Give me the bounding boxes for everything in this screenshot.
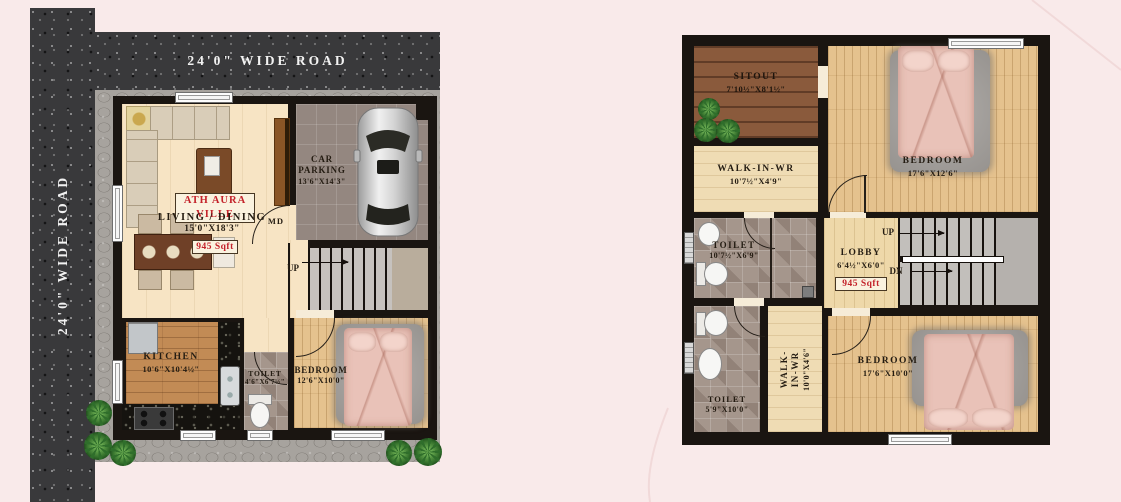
staircase-ground	[308, 248, 392, 310]
sitout-label: SITOUT 7'10½"X8'1½"	[694, 72, 818, 95]
bedroom-bottom-label: BEDROOM 17'6"X10'0"	[828, 356, 948, 379]
stairs-up-label-first: UP	[872, 227, 894, 238]
down-arrow-icon	[912, 271, 952, 272]
passage	[244, 318, 288, 354]
sitout-door-opening	[818, 66, 828, 98]
window	[112, 185, 123, 242]
plant-icon	[84, 432, 112, 460]
plant-icon	[110, 440, 136, 466]
main-door-label: MD	[264, 216, 288, 227]
car-parking-label: CAR PARKING 13'6"X14'3"	[286, 154, 358, 187]
toilet-top-label: TOILET 10'7½"X6'9"	[694, 240, 774, 261]
shower-drain-icon	[802, 286, 814, 298]
living-dining-label: LIVING / DINING 15'0"X18'3"	[150, 211, 274, 236]
toilet-bowl-icon	[704, 310, 728, 336]
road-top: 24'0" WIDE ROAD	[95, 32, 440, 90]
fridge-icon	[128, 322, 158, 354]
toilet-bottom-label: TOILET 5'9"X10'0"	[694, 394, 760, 415]
bedroom-bottom-door-opening	[832, 308, 870, 316]
door-leaf	[864, 175, 866, 213]
window	[684, 342, 694, 374]
walk-in-wr-bottom-label-wrap: WALK-IN-WR 10'0"X4'6"	[768, 306, 822, 432]
window	[175, 92, 233, 103]
sofa-icon	[150, 106, 230, 140]
ground-area-box: 945 Sqft	[192, 240, 238, 254]
road-left: 24'0" WIDE ROAD	[30, 8, 95, 502]
window	[684, 232, 694, 264]
dining-chair-icon	[170, 270, 194, 290]
bedroom-door-opening	[296, 310, 334, 318]
pillow-icon	[348, 332, 376, 352]
staircase-first-up-flight	[898, 218, 996, 256]
stair-handrail	[902, 256, 1004, 263]
car-icon	[352, 106, 424, 238]
toilet-ground-label: TOILET 4'6"X6'7½"	[239, 369, 291, 387]
window	[888, 434, 952, 445]
walk-in-wr-top-label: WALK-IN-WR 10'7½"X4'9"	[694, 164, 818, 187]
toilet-bowl-icon	[250, 402, 270, 428]
kitchen-label: KITCHEN 10'6"X10'4½"	[126, 352, 216, 375]
stairs-dn-label-first: DN	[884, 266, 908, 277]
up-arrow-icon	[302, 262, 348, 263]
pillow-icon	[902, 50, 934, 72]
window	[112, 360, 123, 404]
plant-icon	[716, 119, 740, 143]
pillow-icon	[380, 332, 408, 352]
staircase-landing-ground	[392, 248, 428, 310]
up-arrow-icon	[898, 233, 944, 234]
bedroom-ground-label: BEDROOM 12'6"X10'0"	[292, 365, 350, 386]
dining-chair-icon	[138, 270, 162, 290]
plant-icon	[694, 118, 718, 142]
plant-icon	[414, 438, 442, 466]
window	[180, 430, 216, 441]
laptop-icon	[204, 156, 220, 176]
window	[247, 430, 273, 441]
road-top-label: 24'0" WIDE ROAD	[187, 53, 347, 69]
floor-plan-canvas: 24'0" WIDE ROAD 24'0" WIDE ROAD	[0, 0, 1121, 502]
plant-icon	[386, 440, 412, 466]
pillow-icon	[928, 408, 968, 428]
lamp-table-icon	[126, 106, 152, 132]
stove-icon	[134, 407, 174, 430]
hall-corridor	[290, 240, 308, 318]
toilet-bowl-icon	[704, 262, 728, 286]
plant-icon	[86, 400, 112, 426]
sink-icon	[698, 348, 722, 380]
pillow-icon	[972, 408, 1012, 428]
window	[948, 38, 1024, 49]
first-area-box: 945 Sqft	[835, 277, 887, 291]
road-left-label: 24'0" WIDE ROAD	[55, 175, 71, 335]
walk-in-wr-bottom-label: WALK-IN-WR 10'0"X4'6"	[779, 342, 812, 396]
pillow-icon	[938, 50, 970, 72]
window	[331, 430, 385, 441]
bedroom-top-label: BEDROOM 17'6"X12'6"	[828, 156, 1038, 179]
plant-icon	[698, 98, 720, 120]
toilet-bottom-door-opening	[734, 298, 764, 306]
stairs-up-label: UP	[283, 263, 303, 274]
sink-icon	[220, 366, 240, 406]
